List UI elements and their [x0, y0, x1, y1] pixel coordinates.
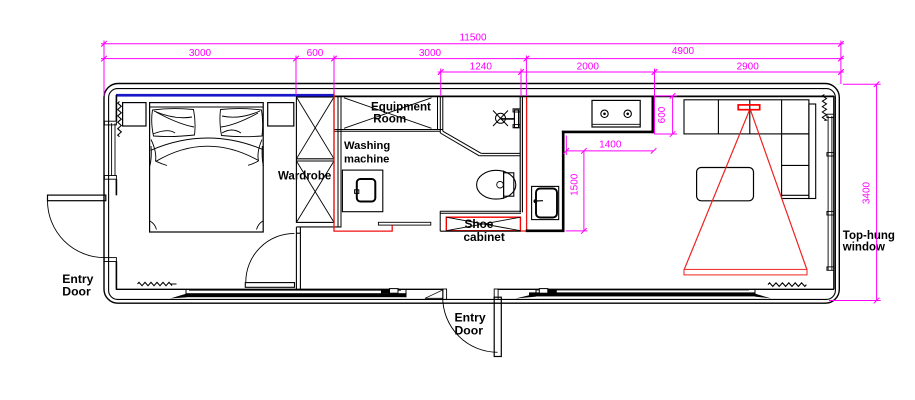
svg-text:Shoe: Shoe	[465, 217, 494, 231]
svg-text:cabinet: cabinet	[464, 230, 505, 244]
svg-text:Door: Door	[62, 285, 91, 299]
svg-text:600: 600	[307, 48, 324, 59]
svg-text:Entry: Entry	[455, 310, 486, 324]
svg-text:window: window	[842, 241, 885, 253]
svg-text:2000: 2000	[577, 62, 600, 73]
svg-text:3400: 3400	[862, 181, 873, 204]
svg-text:1500: 1500	[569, 173, 580, 196]
svg-text:4900: 4900	[672, 46, 695, 57]
svg-text:11500: 11500	[459, 33, 487, 44]
svg-text:Wardrobe: Wardrobe	[278, 170, 331, 182]
svg-text:Equipment: Equipment	[371, 100, 431, 113]
svg-text:machine: machine	[344, 154, 389, 166]
svg-text:1400: 1400	[599, 140, 622, 151]
svg-text:3000: 3000	[419, 48, 442, 59]
svg-text:2900: 2900	[737, 62, 760, 73]
svg-text:Top-hung: Top-hung	[843, 230, 895, 242]
svg-text:Door: Door	[455, 324, 484, 338]
svg-text:Washing: Washing	[344, 140, 390, 152]
svg-text:Room: Room	[373, 113, 406, 126]
svg-text:3000: 3000	[189, 48, 212, 59]
svg-text:600: 600	[657, 106, 668, 123]
svg-text:1240: 1240	[470, 62, 493, 73]
